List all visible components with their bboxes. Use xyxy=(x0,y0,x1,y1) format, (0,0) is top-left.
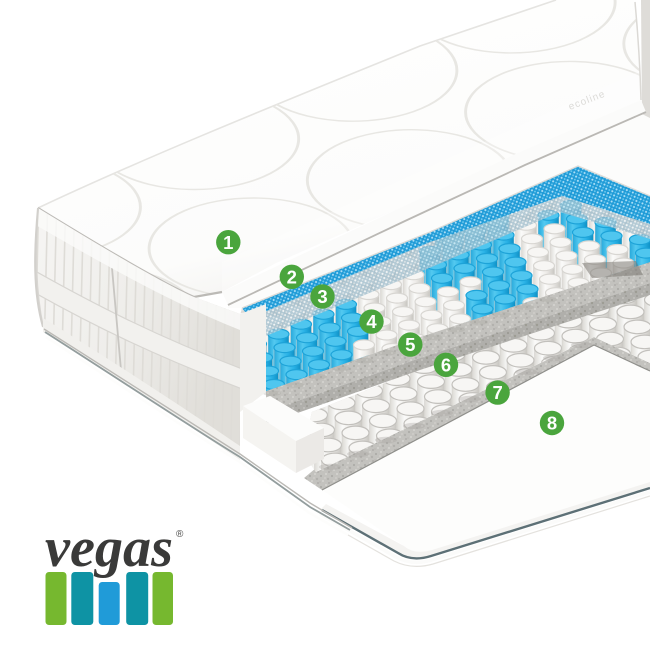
svg-text:3: 3 xyxy=(317,286,327,307)
svg-text:2: 2 xyxy=(287,266,297,287)
svg-text:4: 4 xyxy=(366,311,377,332)
svg-text:1: 1 xyxy=(223,232,233,253)
svg-text:7: 7 xyxy=(492,382,502,403)
svg-text:vegas: vegas xyxy=(45,517,173,579)
svg-text:6: 6 xyxy=(441,354,451,375)
svg-text:5: 5 xyxy=(405,334,415,355)
svg-text:8: 8 xyxy=(547,413,557,434)
svg-text:®: ® xyxy=(176,529,184,540)
